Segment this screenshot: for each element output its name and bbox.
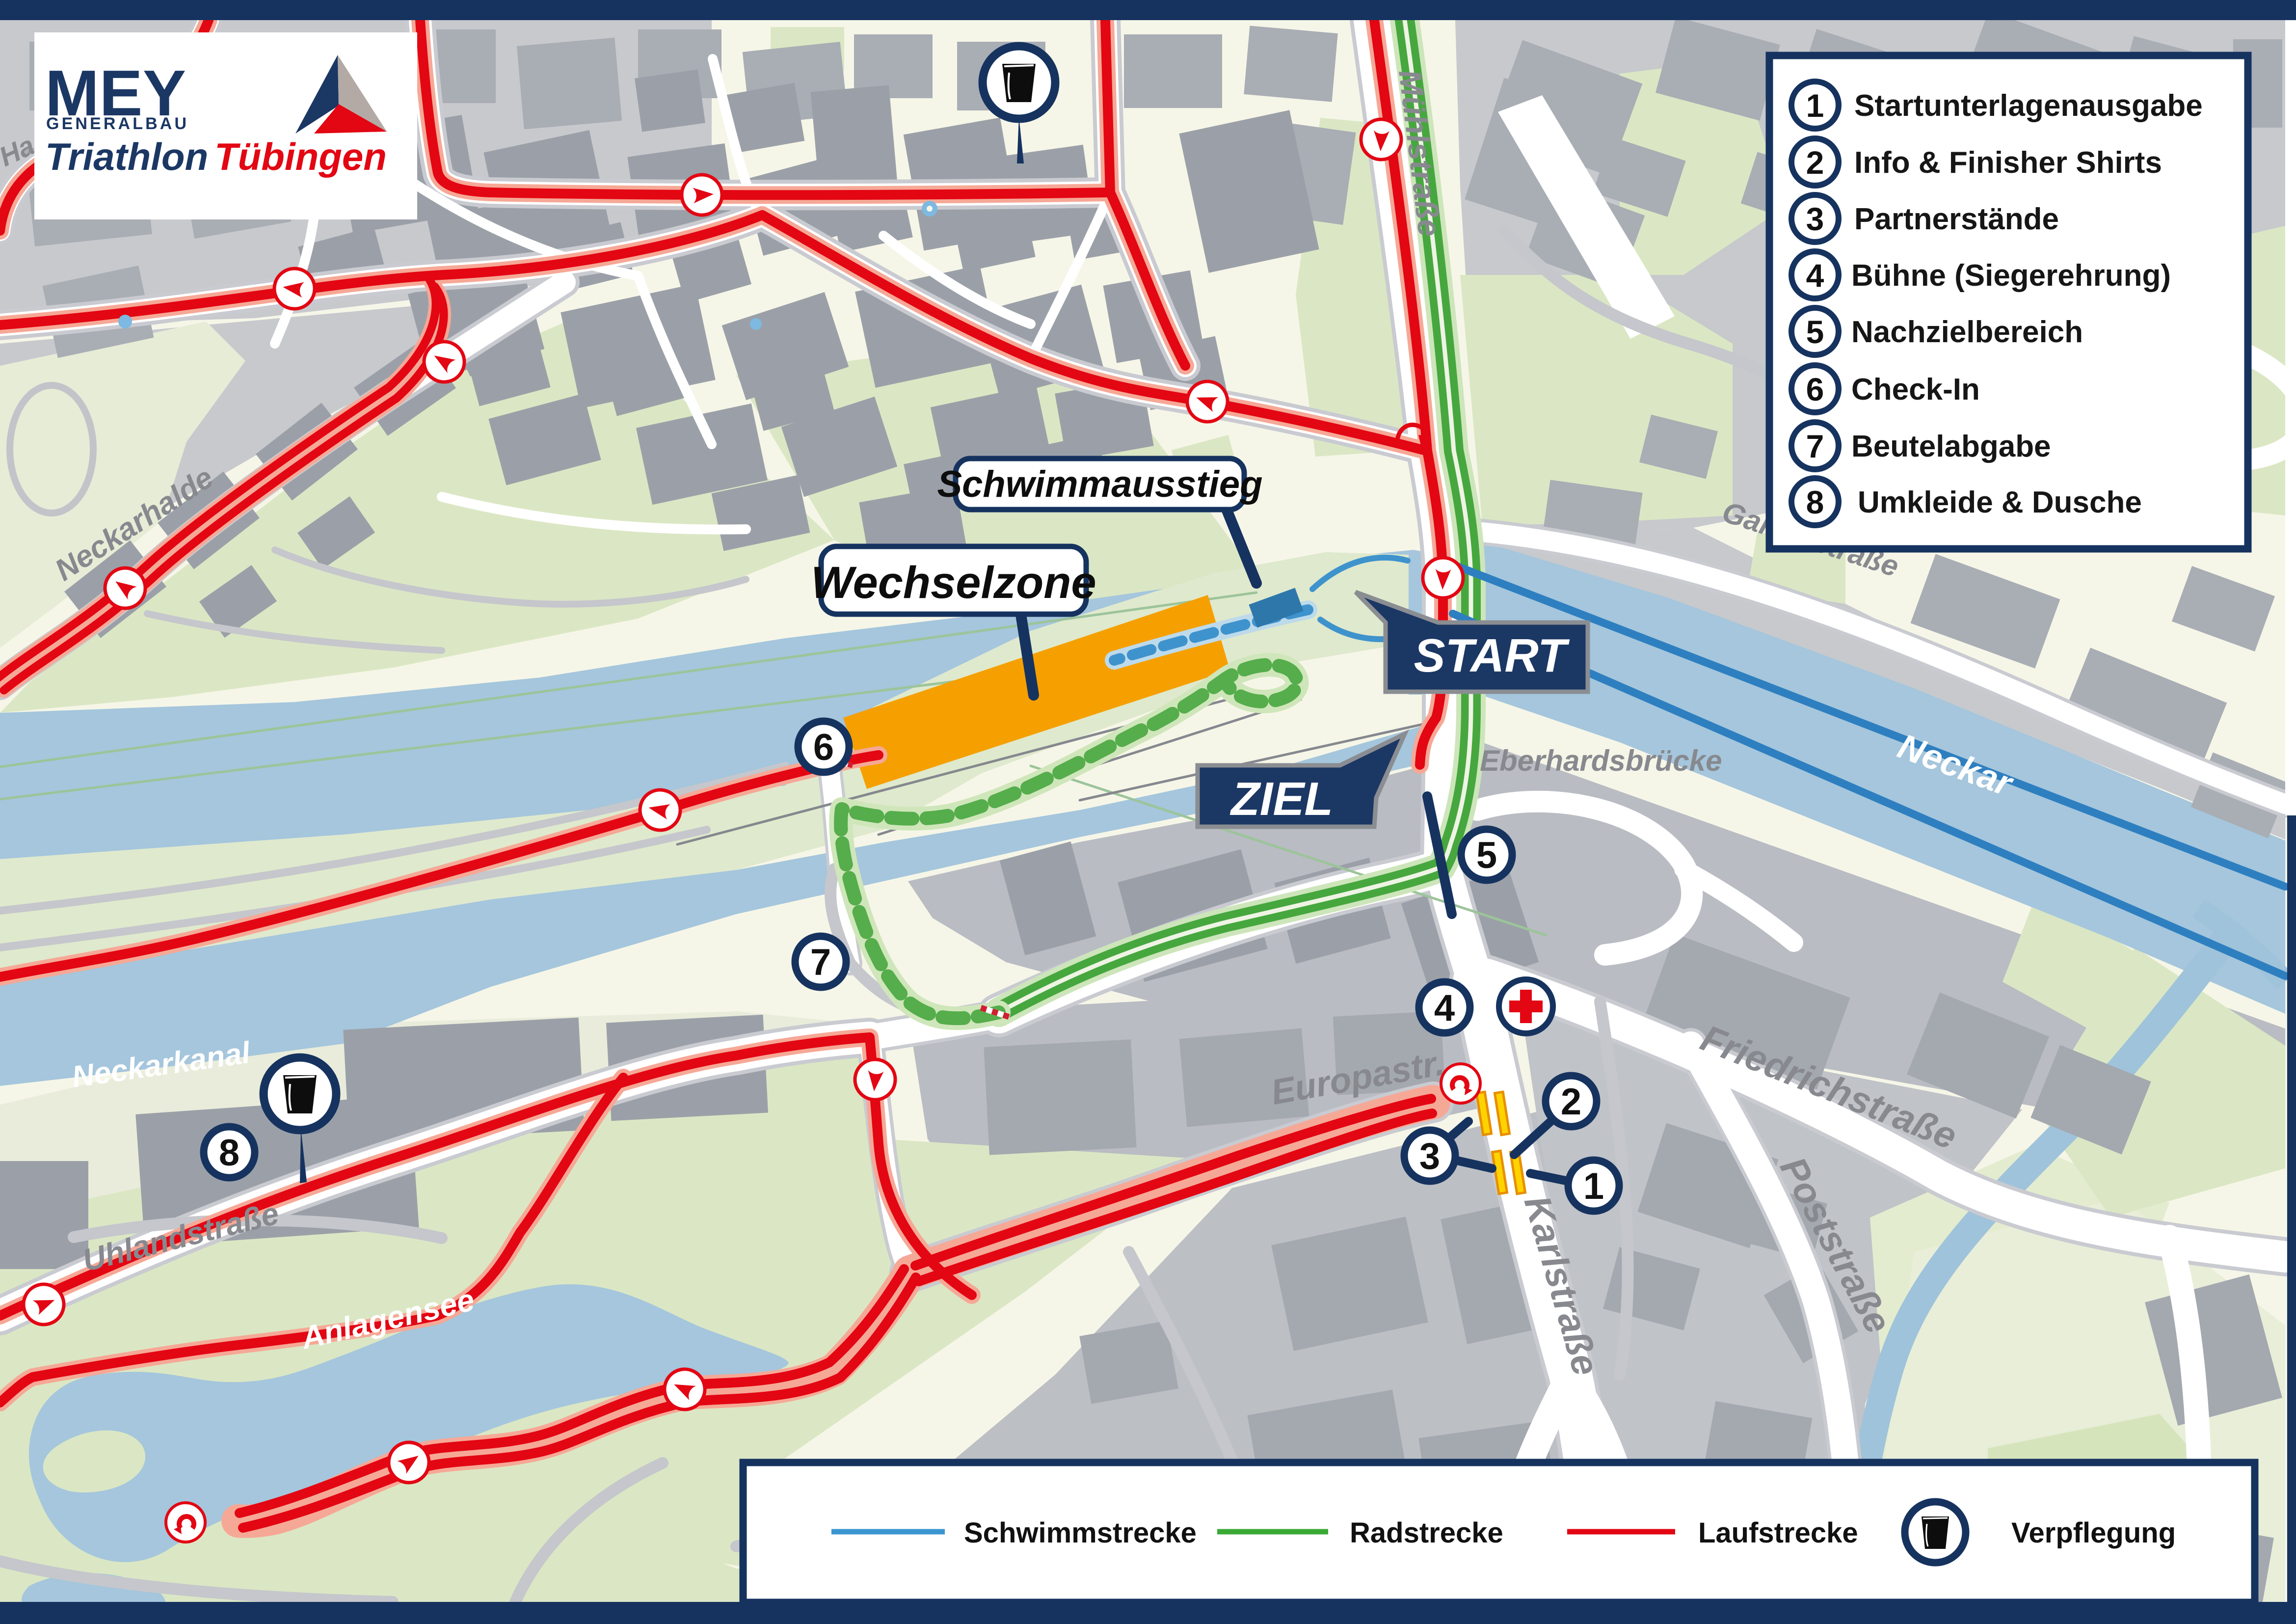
svg-text:Umkleide & Dusche: Umkleide & Dusche	[1858, 486, 2142, 519]
svg-text:START: START	[1414, 629, 1570, 682]
svg-text:5: 5	[1476, 835, 1497, 876]
svg-text:Triathlon: Triathlon	[45, 135, 208, 178]
svg-text:6: 6	[1806, 371, 1824, 407]
svg-text:GENERALBAU: GENERALBAU	[46, 114, 190, 133]
svg-text:Info & Finisher Shirts: Info & Finisher Shirts	[1854, 146, 2162, 180]
svg-text:Schwimmausstieg: Schwimmausstieg	[937, 463, 1262, 505]
svg-text:7: 7	[810, 942, 831, 983]
svg-text:5: 5	[1806, 314, 1824, 350]
svg-text:4: 4	[1434, 987, 1455, 1029]
svg-text:Verpflegung: Verpflegung	[2011, 1517, 2176, 1549]
svg-text:4: 4	[1806, 257, 1824, 294]
svg-text:Check-In: Check-In	[1851, 373, 1980, 406]
svg-text:Eberhardsbrücke: Eberhardsbrücke	[1480, 744, 1722, 777]
svg-text:8: 8	[219, 1132, 240, 1174]
svg-text:3: 3	[1806, 201, 1824, 237]
svg-text:Bühne (Siegerehrung): Bühne (Siegerehrung)	[1851, 259, 2171, 293]
svg-text:1: 1	[1583, 1165, 1604, 1207]
svg-text:2: 2	[1561, 1081, 1581, 1123]
svg-text:7: 7	[1806, 428, 1824, 464]
svg-text:Laufstrecke: Laufstrecke	[1698, 1517, 1858, 1549]
svg-text:Nachzielbereich: Nachzielbereich	[1851, 315, 2083, 349]
svg-text:Radstrecke: Radstrecke	[1350, 1517, 1503, 1549]
svg-text:6: 6	[813, 727, 834, 768]
svg-text:1: 1	[1806, 87, 1824, 124]
svg-text:Tübingen: Tübingen	[214, 135, 387, 178]
svg-text:Wechselzone: Wechselzone	[811, 558, 1096, 608]
svg-text:Schwimmstrecke: Schwimmstrecke	[964, 1517, 1197, 1549]
svg-text:2: 2	[1806, 144, 1824, 181]
svg-text:Startunterlagenausgabe: Startunterlagenausgabe	[1854, 89, 2203, 123]
svg-text:8: 8	[1806, 484, 1824, 520]
svg-text:Partnerstände: Partnerstände	[1854, 202, 2059, 236]
svg-text:ZIEL: ZIEL	[1229, 773, 1333, 825]
svg-text:3: 3	[1419, 1136, 1440, 1177]
svg-text:Beutelabgabe: Beutelabgabe	[1851, 430, 2051, 463]
